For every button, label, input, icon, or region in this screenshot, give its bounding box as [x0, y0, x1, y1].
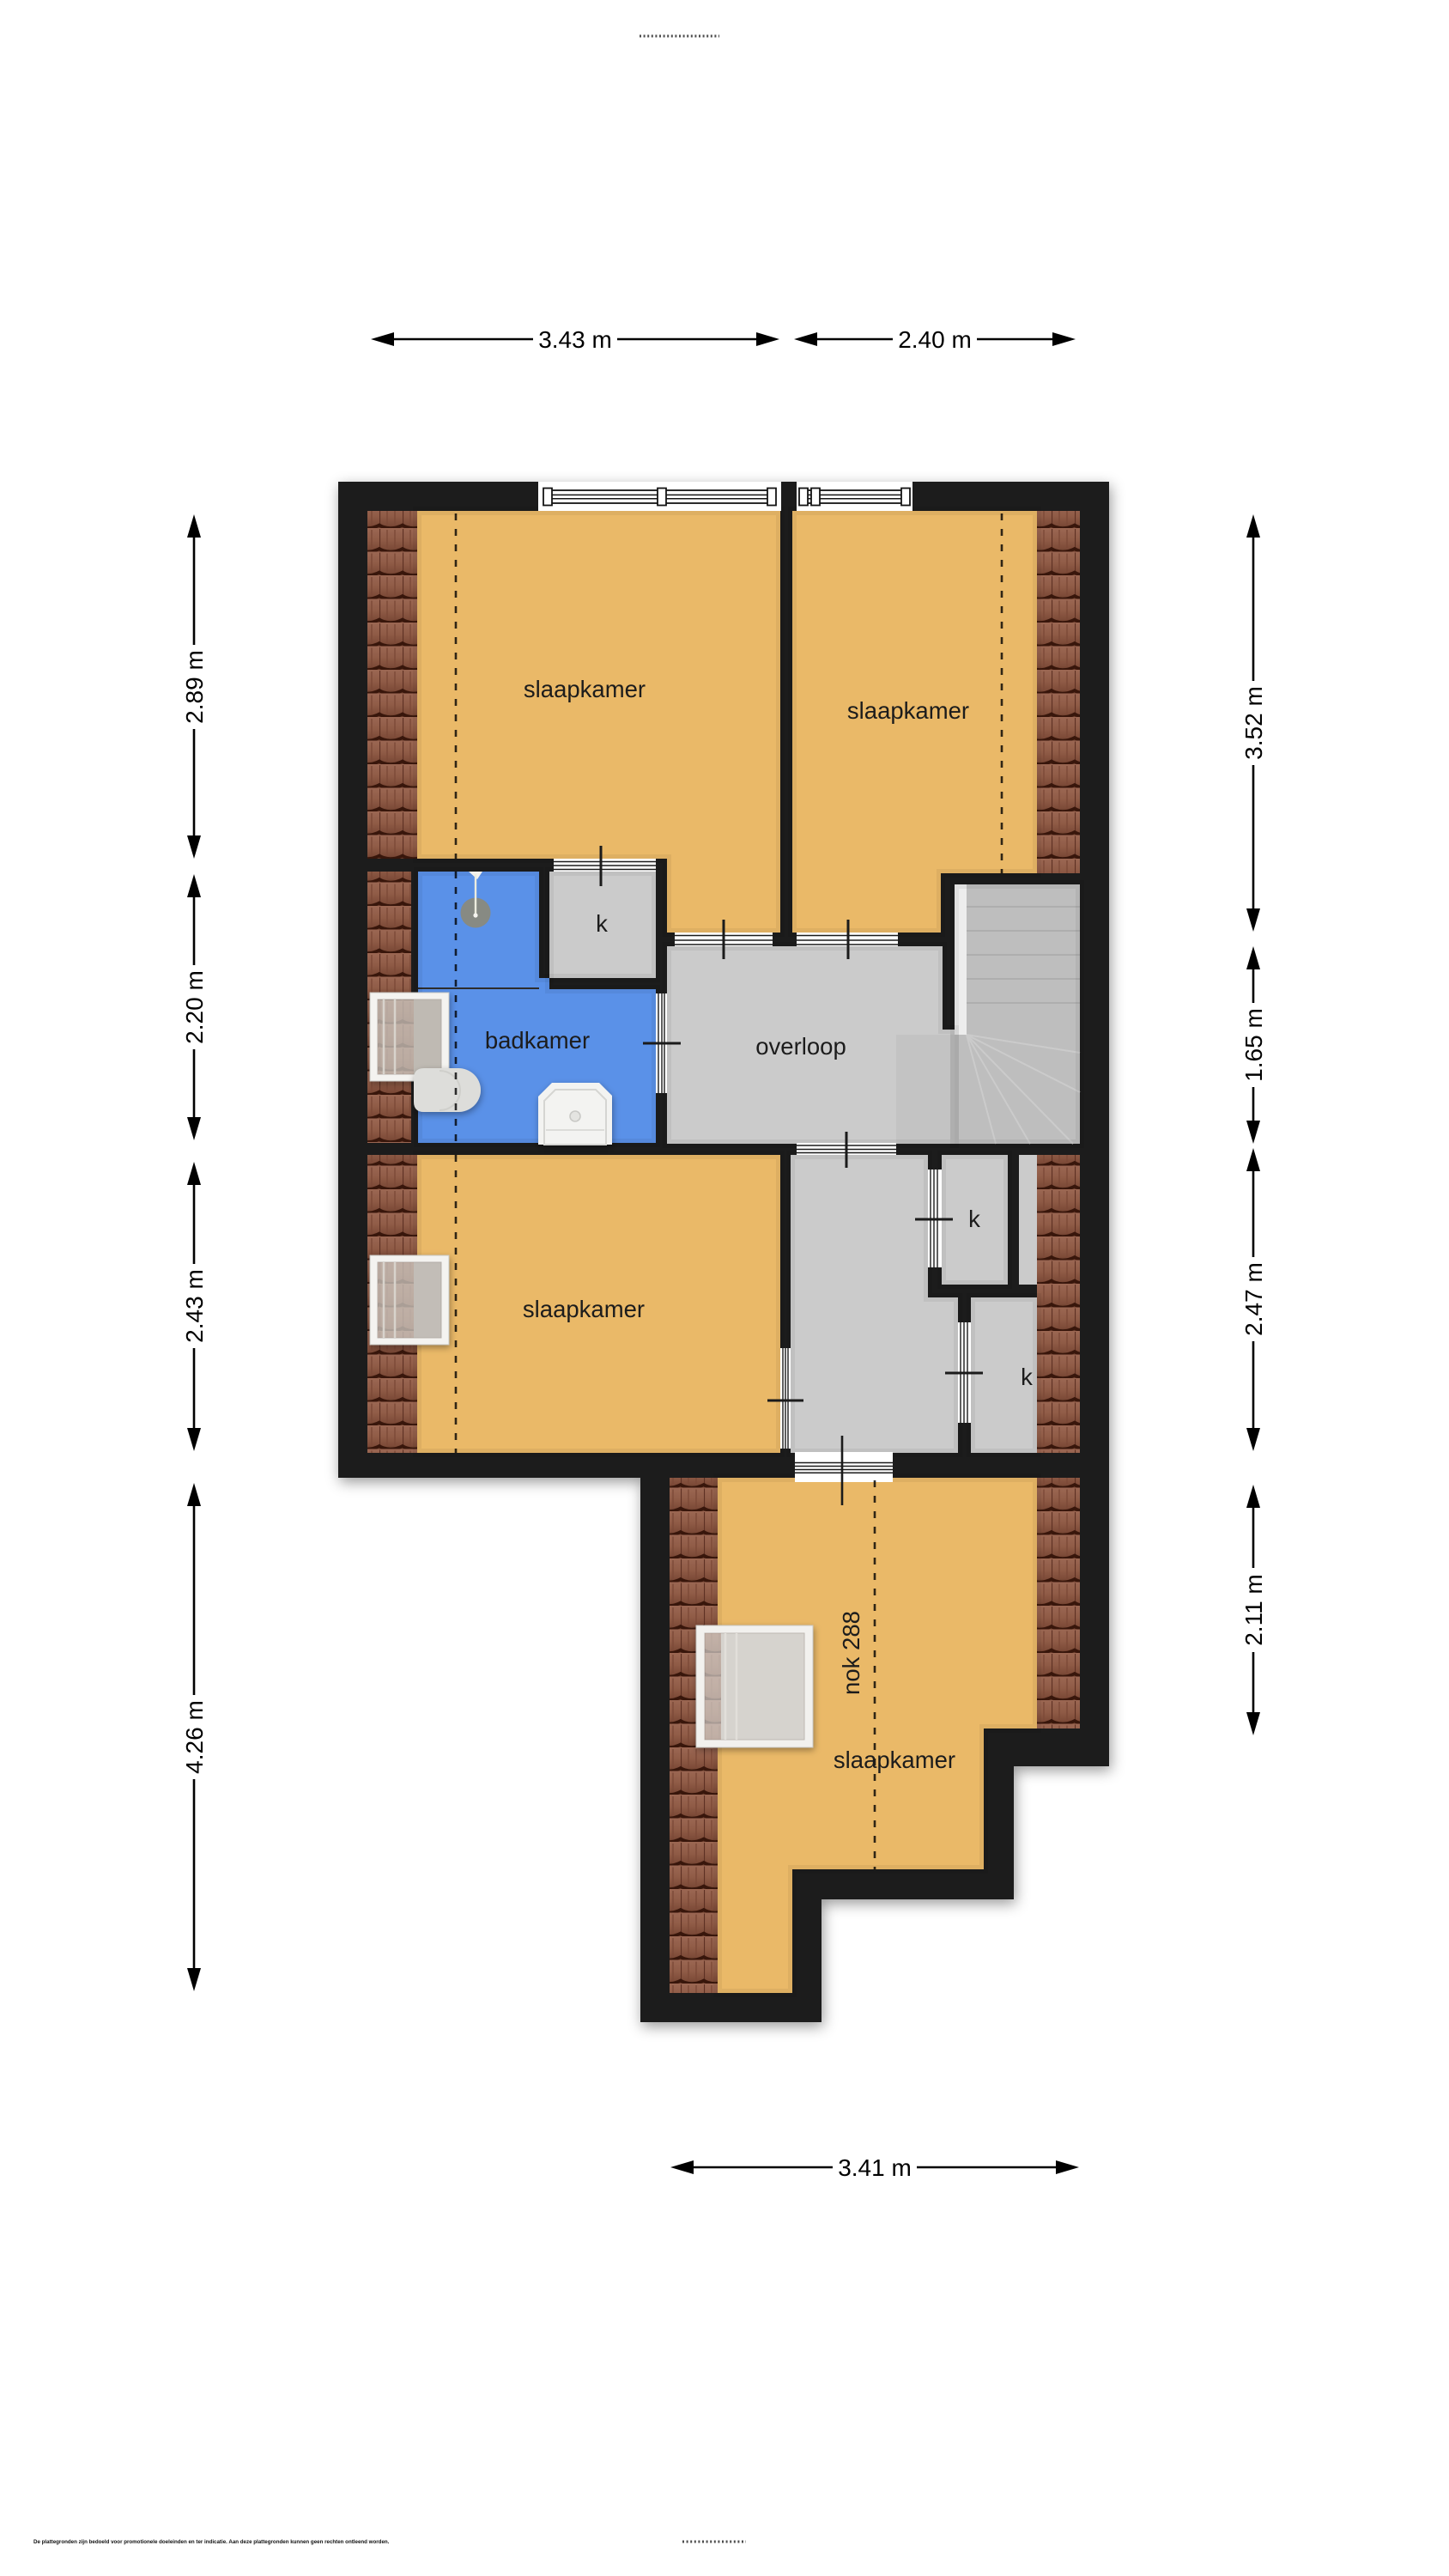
svg-text:3.43 m: 3.43 m	[538, 326, 612, 353]
svg-text:k: k	[1021, 1364, 1033, 1390]
svg-text:2.20 m: 2.20 m	[181, 970, 208, 1044]
svg-text:slaapkamer: slaapkamer	[834, 1747, 955, 1773]
svg-text:overloop: overloop	[755, 1033, 846, 1060]
svg-text:2.11 m: 2.11 m	[1240, 1574, 1267, 1646]
svg-text:2.40 m: 2.40 m	[898, 326, 972, 353]
svg-text:4.26 m: 4.26 m	[181, 1700, 208, 1774]
svg-text:k: k	[596, 910, 608, 937]
svg-text:3.52 m: 3.52 m	[1240, 686, 1267, 760]
svg-text:slaapkamer: slaapkamer	[847, 697, 969, 724]
svg-text:1.65 m: 1.65 m	[1240, 1008, 1267, 1082]
svg-text:nok 288: nok 288	[838, 1611, 864, 1695]
svg-text:2.89 m: 2.89 m	[181, 650, 208, 724]
svg-text:badkamer: badkamer	[485, 1027, 590, 1054]
svg-text:k: k	[968, 1206, 980, 1232]
svg-text:slaapkamer: slaapkamer	[524, 676, 646, 702]
svg-text:2.47 m: 2.47 m	[1240, 1262, 1267, 1336]
svg-text:3.41 m: 3.41 m	[838, 2154, 912, 2181]
svg-text:2.43 m: 2.43 m	[181, 1269, 208, 1343]
svg-text:De plattegronden zijn bedoeld: De plattegronden zijn bedoeld voor promo…	[33, 2539, 390, 2545]
svg-text:slaapkamer: slaapkamer	[523, 1296, 645, 1322]
